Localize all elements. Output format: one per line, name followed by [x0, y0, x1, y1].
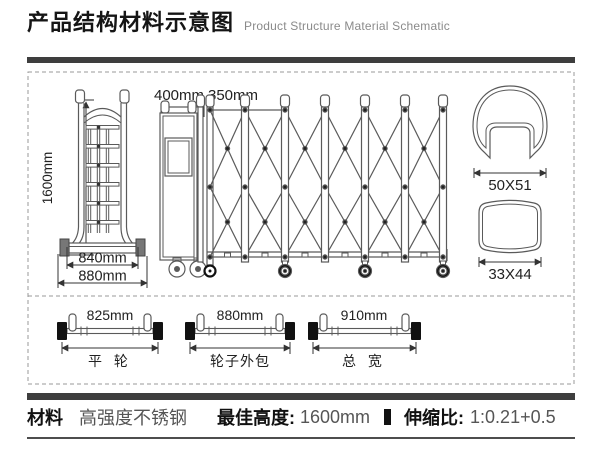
joint-dot [323, 108, 327, 112]
joint-dot [363, 185, 367, 189]
joint-dot [363, 108, 367, 112]
joint-dot [283, 185, 287, 189]
accordion-fence [207, 95, 450, 278]
axle-bracket [320, 314, 327, 331]
joint-dot [363, 255, 367, 259]
axle-flat-wheel: 825mm 平 轮 [57, 307, 163, 369]
joint-dot [303, 220, 307, 224]
ladder-rung [86, 164, 119, 168]
ratio-value: 1:0.21+0.5 [470, 407, 556, 428]
joint-dot [208, 185, 212, 189]
gate-arch-inner [84, 115, 121, 123]
joint-dot [208, 108, 212, 112]
footer-rule [27, 437, 575, 439]
axle-wheel [411, 322, 421, 340]
post-cap [401, 95, 410, 107]
joint-dot [441, 108, 445, 112]
axle-length-label: 880mm [217, 307, 264, 323]
post-cap [76, 90, 85, 103]
rail-hinge [262, 253, 268, 257]
profile-33x44: 33X44 [479, 200, 541, 283]
head-unit [160, 113, 197, 260]
joint-dot [243, 255, 247, 259]
rail-hinge [342, 253, 348, 257]
joint-dot [243, 108, 247, 112]
axle-bracket [402, 314, 409, 331]
post-cap [321, 95, 330, 107]
joint-dot [323, 255, 327, 259]
axle-wheel [57, 322, 67, 340]
front-view: 1600mm [40, 90, 147, 288]
rail-hinge [225, 253, 231, 257]
material-value: 高强度不锈钢 [79, 404, 187, 430]
axle-name-label: 平 轮 [88, 353, 132, 369]
joint-dot [383, 220, 387, 224]
joint-dot [208, 255, 212, 259]
joint-dot [422, 220, 426, 224]
front-wheel [60, 239, 69, 256]
side-view-section-width-label: 350mm [208, 87, 258, 104]
rail-hinge [421, 253, 427, 257]
post-cap [206, 95, 214, 107]
joint-dot [403, 255, 407, 259]
page-subtitle: Product Structure Material Schematic [244, 19, 450, 36]
profile-33x44-label: 33X44 [488, 266, 531, 283]
joint-dot [403, 185, 407, 189]
title-underline-bar [27, 57, 575, 63]
joint-dot [383, 146, 387, 150]
front-wheel [136, 239, 145, 256]
axle-wheel [308, 322, 318, 340]
axle-bracket [69, 314, 76, 331]
ladder-rung [86, 126, 119, 130]
side-view: 400mm 350mm [154, 87, 450, 278]
profile-50x51: 50X51 [473, 86, 547, 194]
material-label: 材料 [27, 404, 63, 430]
joint-dot [263, 146, 267, 150]
rail-hinge [382, 253, 388, 257]
axle-total-width: 910mm 总 宽 [308, 307, 421, 369]
profile-50x51-label: 50X51 [488, 177, 531, 194]
axle-wheel [185, 322, 195, 340]
rail-hinge [302, 253, 308, 257]
joint-dot [343, 146, 347, 150]
joint-dot [343, 220, 347, 224]
joint-dot [225, 220, 229, 224]
footer-divider-bar [27, 393, 575, 400]
joint-dot [422, 146, 426, 150]
post-cap [120, 90, 129, 103]
axle-wheel-outer: 880mm 轮子外包 [185, 307, 295, 369]
axle-wheel [153, 322, 163, 340]
joint-dot [243, 185, 247, 189]
axle-bracket [197, 314, 204, 331]
post-cap [161, 101, 169, 113]
ladder-rung [86, 183, 119, 187]
axle-length-label: 910mm [341, 307, 388, 323]
joint-dot [225, 146, 229, 150]
front-view-height-dimension: 1600mm [40, 100, 94, 255]
joint-dot [403, 108, 407, 112]
joint-dot [441, 185, 445, 189]
footer-separator [384, 409, 391, 425]
footer-info: 材料 高强度不锈钢 最佳高度: 1600mm 伸缩比: 1:0.21+0.5 [27, 404, 587, 430]
joint-dot [323, 185, 327, 189]
axle-bracket [144, 314, 151, 331]
profile-sections: 50X51 33X44 [473, 86, 547, 283]
ladder-rung [86, 145, 119, 149]
ratio-label: 伸缩比: [404, 404, 464, 430]
joint-dot [283, 255, 287, 259]
best-height-value: 1600mm [300, 407, 370, 428]
ladder-rung [86, 202, 119, 206]
axle-name-label: 轮子外包 [210, 353, 270, 369]
axle-length-label: 825mm [87, 307, 134, 323]
post-cap [188, 101, 196, 113]
post-cap [361, 95, 370, 107]
joint-dot [441, 255, 445, 259]
axle-name-label: 总 宽 [342, 353, 386, 369]
page-header: 产品结构材料示意图 Product Structure Material Sch… [27, 10, 450, 36]
ladder-rung [86, 221, 119, 225]
page-title: 产品结构材料示意图 [27, 10, 234, 36]
front-view-inner-width-label: 840mm [78, 251, 126, 267]
best-height-label: 最佳高度: [217, 404, 295, 430]
schematic-drawing: 1600mm [27, 70, 575, 386]
post-cap [281, 95, 290, 107]
post-cap [197, 95, 205, 107]
front-view-outer-width-label: 880mm [78, 269, 126, 285]
post-cap [439, 95, 448, 107]
joint-dot [263, 220, 267, 224]
joint-dot [303, 146, 307, 150]
gate-arch [84, 109, 121, 118]
front-view-height-label: 1600mm [40, 152, 55, 205]
axle-bracket [276, 314, 283, 331]
axle-bar [67, 329, 153, 334]
post-cap [241, 95, 250, 107]
schematic-svg: 1600mm [27, 70, 575, 386]
joint-dot [283, 108, 287, 112]
axle-wheel [285, 322, 295, 340]
